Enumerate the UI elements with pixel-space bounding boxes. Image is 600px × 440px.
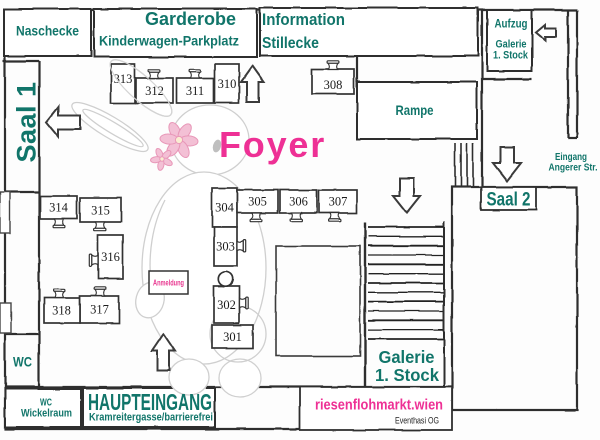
svg-text:Saal 2: Saal 2 [487,190,531,211]
svg-text:Stillecke: Stillecke [262,35,319,52]
svg-text:302: 302 [217,298,236,312]
svg-text:311: 311 [186,84,204,98]
svg-text:305: 305 [248,195,267,209]
svg-text:301: 301 [223,330,242,344]
svg-text:Eingang: Eingang [555,151,587,163]
svg-text:306: 306 [289,195,308,209]
svg-text:308: 308 [324,78,343,92]
svg-text:Aufzug: Aufzug [495,17,528,31]
svg-text:riesenflohmarkt.wien: riesenflohmarkt.wien [315,398,443,414]
svg-text:Kinderwagen-Parkplatz: Kinderwagen-Parkplatz [99,33,239,49]
svg-text:Galerie: Galerie [379,347,435,367]
svg-text:Angerer Str.: Angerer Str. [549,163,598,174]
svg-text:1. Stock: 1. Stock [493,50,529,62]
svg-text:304: 304 [215,201,235,215]
svg-text:314: 314 [49,201,69,215]
svg-text:1. Stock: 1. Stock [375,365,439,385]
svg-text:307: 307 [329,195,348,209]
svg-text:318: 318 [52,304,71,318]
svg-text:Wickelraum: Wickelraum [21,408,72,420]
svg-text:Saal 1: Saal 1 [12,81,42,162]
svg-text:Foyer: Foyer [219,124,326,165]
svg-text:WC: WC [13,354,32,370]
svg-text:Information: Information [262,11,345,29]
svg-text:303: 303 [216,240,235,254]
svg-text:310: 310 [218,77,237,91]
svg-text:315: 315 [91,204,110,218]
svg-text:316: 316 [101,250,120,264]
svg-text:Garderobe: Garderobe [145,9,236,29]
svg-text:Rampe: Rampe [396,102,434,118]
svg-text:Eventhasi OG: Eventhasi OG [395,416,439,427]
svg-text:317: 317 [90,303,109,317]
svg-text:Kramreitergasse/barrierefrei: Kramreitergasse/barrierefrei [89,412,213,424]
svg-text:Anmeldung: Anmeldung [153,279,184,288]
svg-text:Naschecke: Naschecke [16,23,79,39]
